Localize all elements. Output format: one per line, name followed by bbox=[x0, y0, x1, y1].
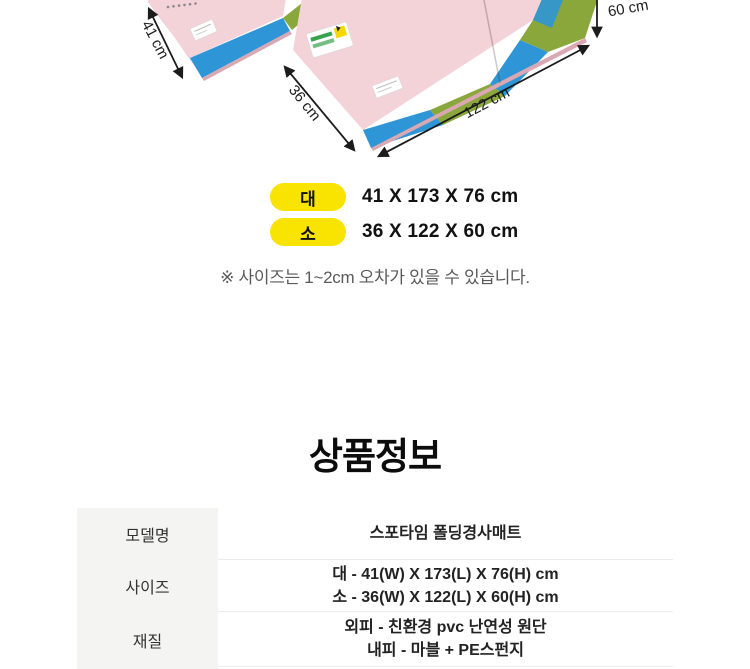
size-row-large: 대 41 X 173 X 76 cm bbox=[270, 183, 518, 211]
row-value-line: 내피 - 마블 + PE스펀지 bbox=[367, 639, 524, 662]
size-row-small: 소 36 X 122 X 60 cm bbox=[270, 218, 518, 246]
row-value: 스포타임 폴딩경사매트 bbox=[218, 508, 673, 560]
row-label: 사이즈 bbox=[77, 560, 218, 612]
product-detail-page: 41 cm 36 cm 122 cm 60 cm 대 41 X 173 X 76… bbox=[0, 0, 750, 669]
size-value-small: 36 X 122 X 60 cm bbox=[362, 221, 518, 243]
size-badge-large: 대 bbox=[270, 183, 346, 211]
row-value-line: 대 - 41(W) X 173(L) X 76(H) cm bbox=[332, 563, 558, 586]
small-mat-image bbox=[293, 0, 600, 151]
table-row-material: 재질 외피 - 친환경 pvc 난연성 원단 내피 - 마블 + PE스펀지 bbox=[77, 612, 673, 667]
table-row-model: 모델명 스포타임 폴딩경사매트 bbox=[77, 508, 673, 560]
section-title: 상품정보 bbox=[0, 426, 750, 480]
size-badge-small: 소 bbox=[270, 218, 346, 246]
row-value: 대 - 41(W) X 173(L) X 76(H) cm 소 - 36(W) … bbox=[218, 560, 673, 612]
small-height-label: 60 cm bbox=[607, 0, 650, 20]
size-tolerance-note: ※ 사이즈는 1~2cm 오차가 있을 수 있습니다. bbox=[0, 263, 750, 288]
row-value-line: 소 - 36(W) X 122(L) X 60(H) cm bbox=[332, 586, 558, 609]
row-label: 모델명 bbox=[77, 508, 218, 560]
small-width-label: 36 cm bbox=[285, 82, 324, 124]
row-value-line: 외피 - 친환경 pvc 난연성 원단 bbox=[344, 616, 546, 639]
product-info-table: 모델명 스포타임 폴딩경사매트 사이즈 대 - 41(W) X 173(L) X… bbox=[77, 508, 673, 669]
row-value-line: 스포타임 폴딩경사매트 bbox=[370, 522, 522, 545]
row-label: 재질 bbox=[77, 612, 218, 667]
table-row-size: 사이즈 대 - 41(W) X 173(L) X 76(H) cm 소 - 36… bbox=[77, 560, 673, 612]
row-value: 외피 - 친환경 pvc 난연성 원단 내피 - 마블 + PE스펀지 bbox=[218, 612, 673, 667]
mat-dimension-illustration: 41 cm 36 cm 122 cm 60 cm bbox=[0, 0, 750, 300]
size-value-large: 41 X 173 X 76 cm bbox=[362, 186, 518, 208]
